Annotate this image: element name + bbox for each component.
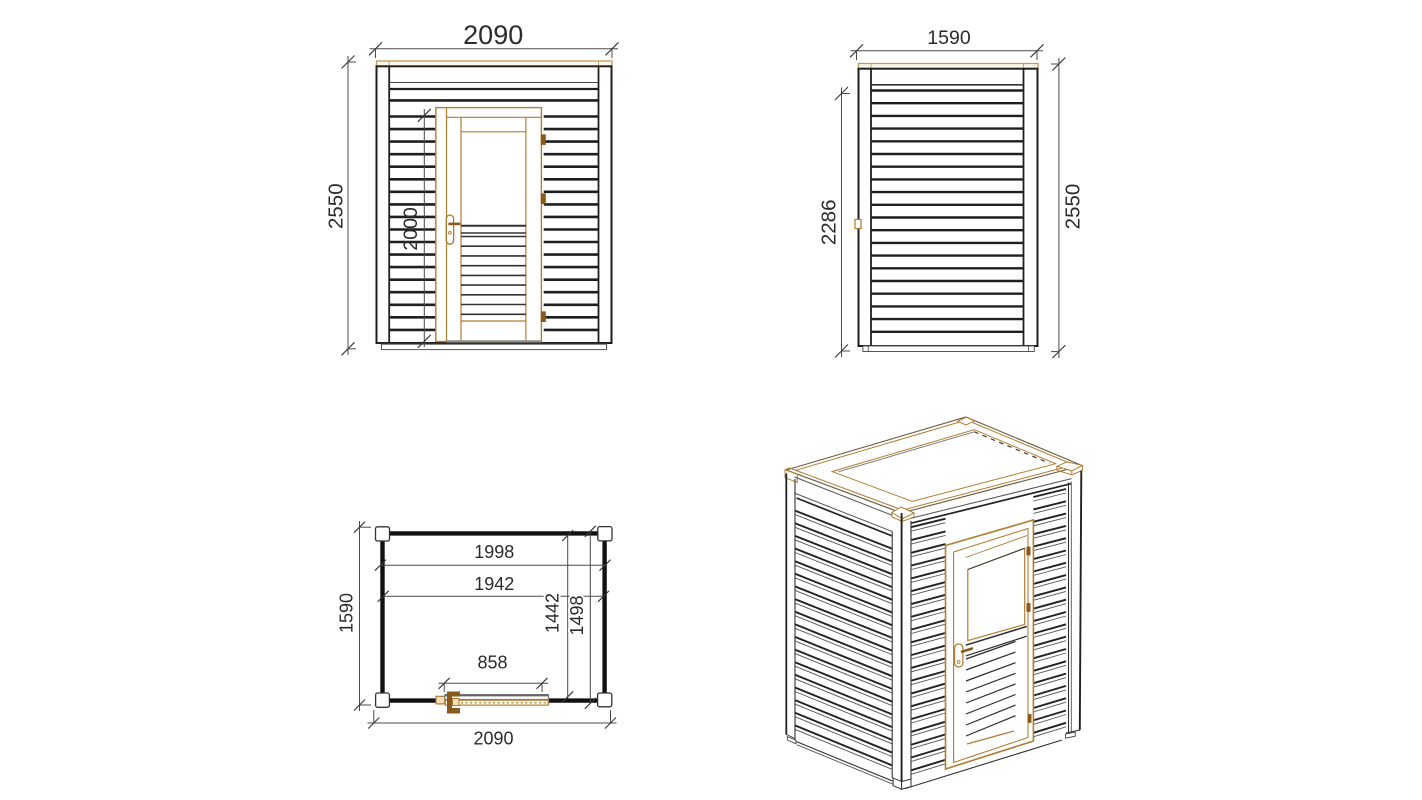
svg-text:2286: 2286	[818, 199, 841, 245]
svg-text:1498: 1498	[567, 595, 587, 635]
svg-text:1942: 1942	[474, 574, 514, 594]
svg-text:2090: 2090	[473, 728, 513, 748]
svg-text:1998: 1998	[474, 542, 514, 562]
svg-text:1442: 1442	[543, 593, 563, 633]
svg-text:2000: 2000	[400, 207, 422, 251]
svg-text:2550: 2550	[1061, 184, 1084, 230]
svg-text:858: 858	[477, 653, 507, 673]
svg-text:2550: 2550	[325, 183, 348, 229]
svg-text:1590: 1590	[927, 27, 971, 49]
svg-text:2090: 2090	[463, 20, 523, 50]
svg-text:1590: 1590	[337, 593, 357, 633]
